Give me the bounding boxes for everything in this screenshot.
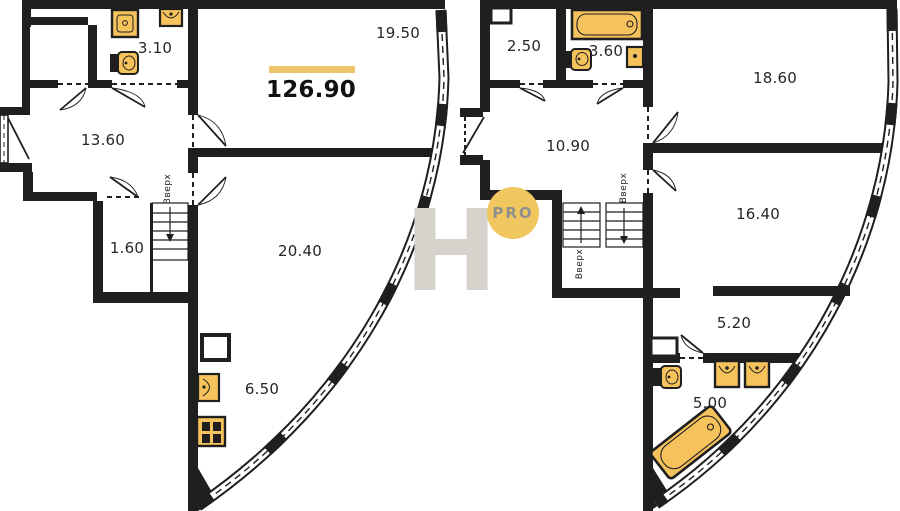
bathtub-icon <box>572 10 642 39</box>
room-area-label-bath5: 5.00 <box>693 394 727 412</box>
sink-icon <box>160 9 182 26</box>
room-area-label-bedroom2: 16.40 <box>736 205 780 223</box>
room-area-label-bedroom1: 18.60 <box>753 69 797 87</box>
room-area-label-room: 20.40 <box>278 242 322 260</box>
room-area-label-bathroom: 3.10 <box>138 39 172 57</box>
total-area-label: 126.90 <box>266 77 356 103</box>
duct-icon <box>651 338 677 356</box>
shower-tray-icon <box>112 10 138 37</box>
sink-icon <box>627 47 643 67</box>
kitchen-sink-icon <box>198 374 219 401</box>
sink-icon <box>745 361 769 387</box>
room-area-label-wc: 1.60 <box>110 239 144 257</box>
room-area-label-kitchen: 6.50 <box>245 380 279 398</box>
room-area-label-living: 19.50 <box>376 24 420 42</box>
niche-icon <box>491 8 511 23</box>
watermark-pro-badge: PRO <box>487 187 539 239</box>
toilet-icon <box>653 366 681 388</box>
watermark-logo: H <box>404 196 498 308</box>
room-area-label-dressing: 5.20 <box>717 314 751 332</box>
sink-icon <box>715 361 739 387</box>
floor1-left-window <box>0 115 29 163</box>
floor2-fixtures <box>491 8 769 480</box>
floor2-stairs <box>563 203 643 247</box>
room-area-label-hall: 13.60 <box>81 131 125 149</box>
fridge-icon <box>202 335 229 360</box>
room-area-label-hall2: 10.90 <box>546 137 590 155</box>
total-area-accent-bar <box>269 66 355 73</box>
toilet-icon <box>564 49 591 70</box>
room-area-label-wardrobe: 2.50 <box>507 37 541 55</box>
room-area-label-bathroom2: 3.60 <box>589 42 623 60</box>
stairs-direction-label: Вверх <box>575 249 585 280</box>
bathtub-icon <box>650 405 732 480</box>
toilet-icon <box>110 52 138 74</box>
stairs-direction-label: Вверх <box>619 173 629 204</box>
stairs-direction-label: Вверх <box>163 174 173 205</box>
floorplan-canvas: H PRO 126.90 3.10 19.50 13.60 1.60 20.40… <box>0 0 900 511</box>
floor1-stairs <box>152 203 188 260</box>
stove-icon <box>197 417 225 446</box>
